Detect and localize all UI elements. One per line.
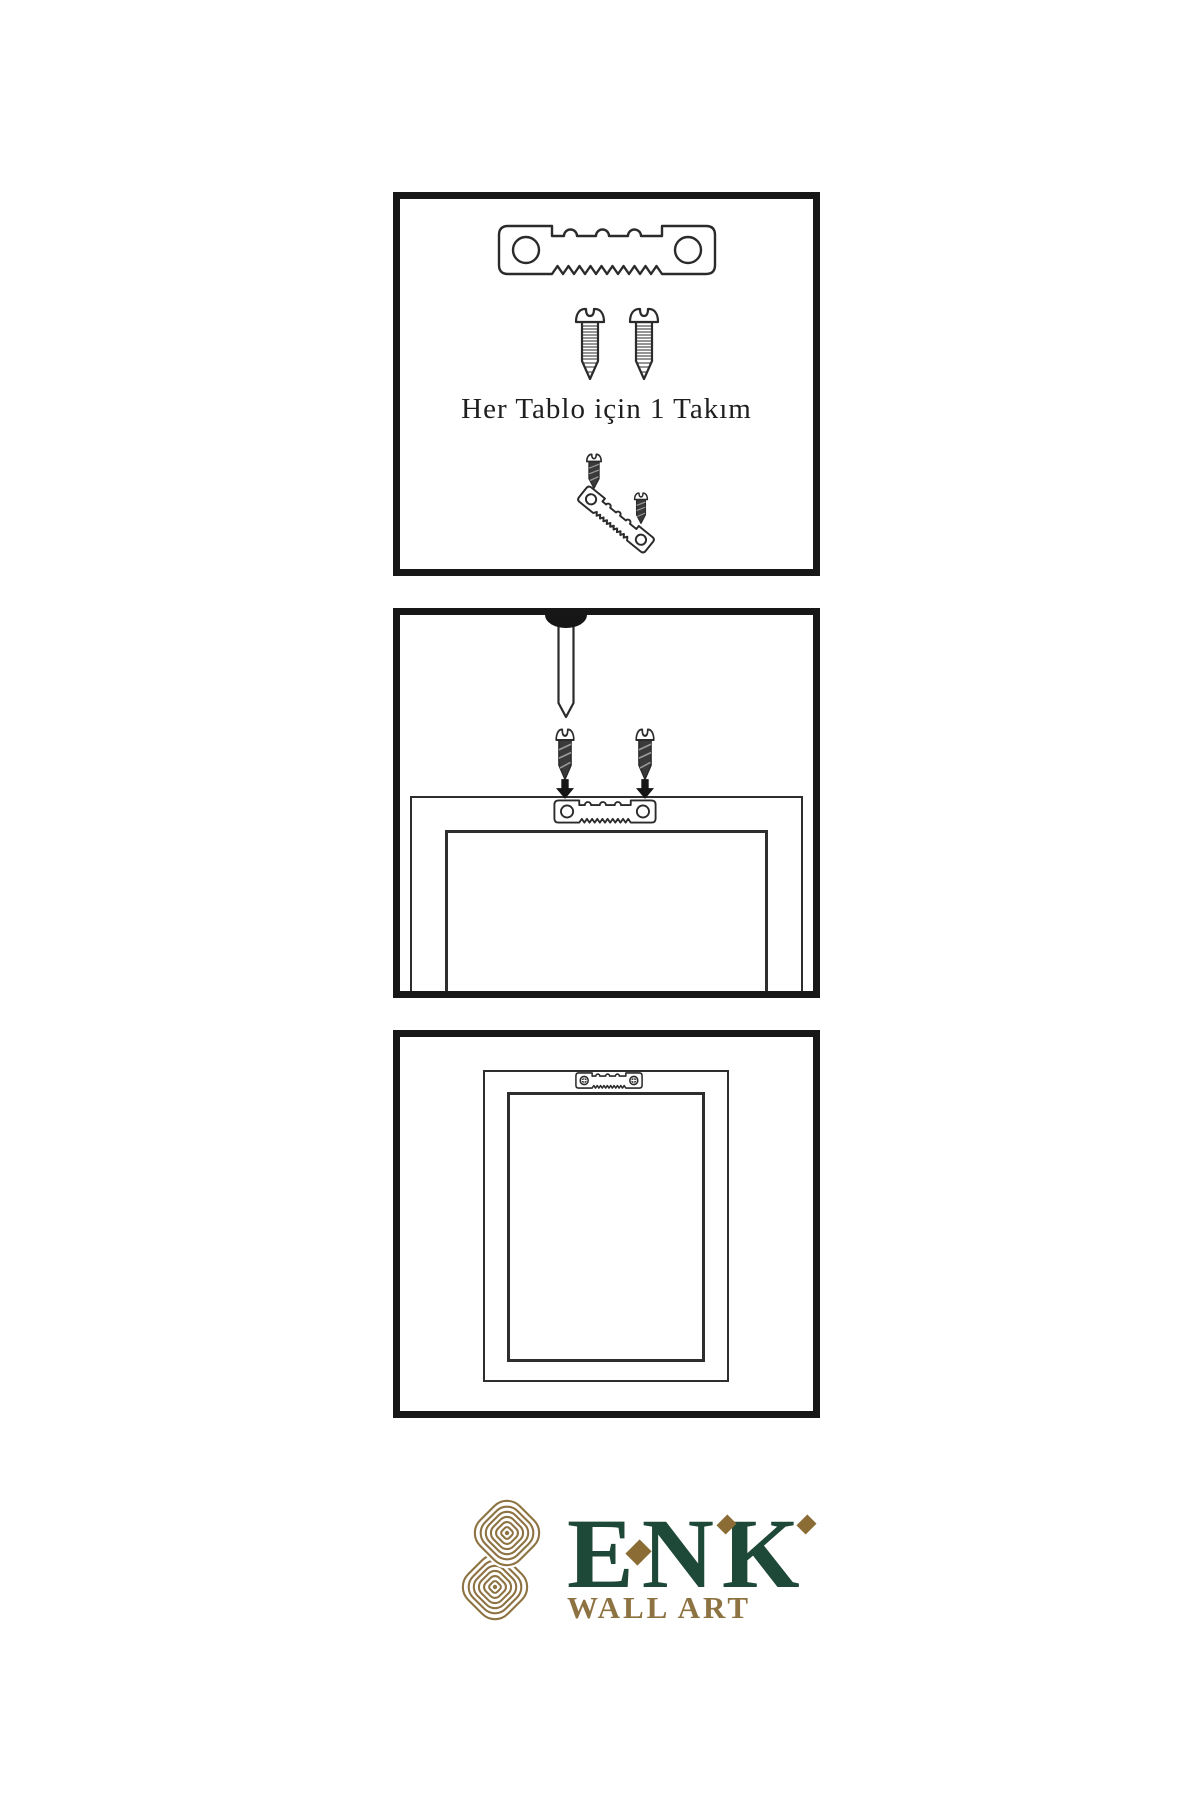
dark-screw-icon	[634, 726, 656, 782]
sawtooth-hanger-icon	[496, 223, 718, 277]
step-3-hang-panel	[393, 1030, 820, 1418]
hanger-hole	[675, 237, 701, 263]
brand-subtitle: WALL ART	[567, 1592, 751, 1623]
dark-screw-icon	[633, 491, 649, 525]
brand-name: ENK	[567, 1504, 808, 1604]
arrow-down-icon	[636, 777, 654, 801]
nail-head	[545, 615, 587, 628]
knot-logo	[440, 1495, 560, 1625]
step-1-caption: Her Tablo için 1 Takım	[400, 393, 813, 426]
nail-icon	[544, 615, 588, 719]
screw-icon	[573, 305, 607, 381]
step-2-mount-panel	[393, 608, 820, 998]
step-1-hardware-kit-panel: Her Tablo için 1 Takım	[393, 192, 820, 576]
frame-back-inner	[445, 830, 768, 998]
screw-icon	[627, 305, 661, 381]
dark-screw-icon	[554, 726, 576, 782]
frame-back-inner	[507, 1092, 705, 1362]
arrow-down-icon	[556, 777, 574, 801]
hanger-hole	[513, 237, 539, 263]
instruction-sheet: { "page": { "background": "#ffffff" }, "…	[0, 0, 1200, 1800]
dark-screw-icon	[585, 452, 603, 490]
sawtooth-hanger-icon	[553, 799, 657, 824]
mounted-sawtooth-hanger-icon	[575, 1072, 643, 1089]
